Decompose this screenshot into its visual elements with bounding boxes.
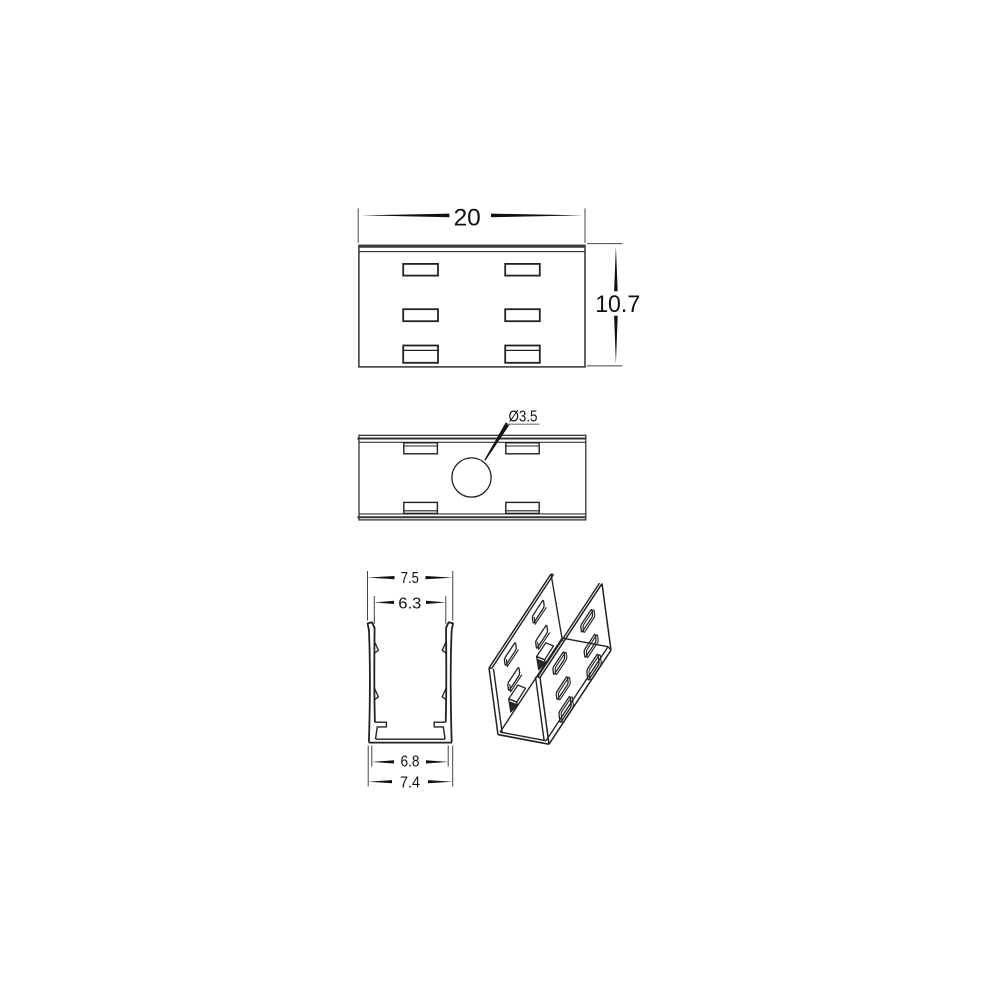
svg-text:20: 20 (454, 205, 481, 232)
svg-text:7.4: 7.4 (400, 774, 420, 791)
svg-text:6.3: 6.3 (398, 596, 421, 613)
svg-text:7.5: 7.5 (401, 570, 419, 587)
svg-text:Ø3.5: Ø3.5 (509, 409, 538, 426)
svg-text:10.7: 10.7 (595, 291, 640, 318)
svg-text:6.8: 6.8 (401, 754, 420, 771)
